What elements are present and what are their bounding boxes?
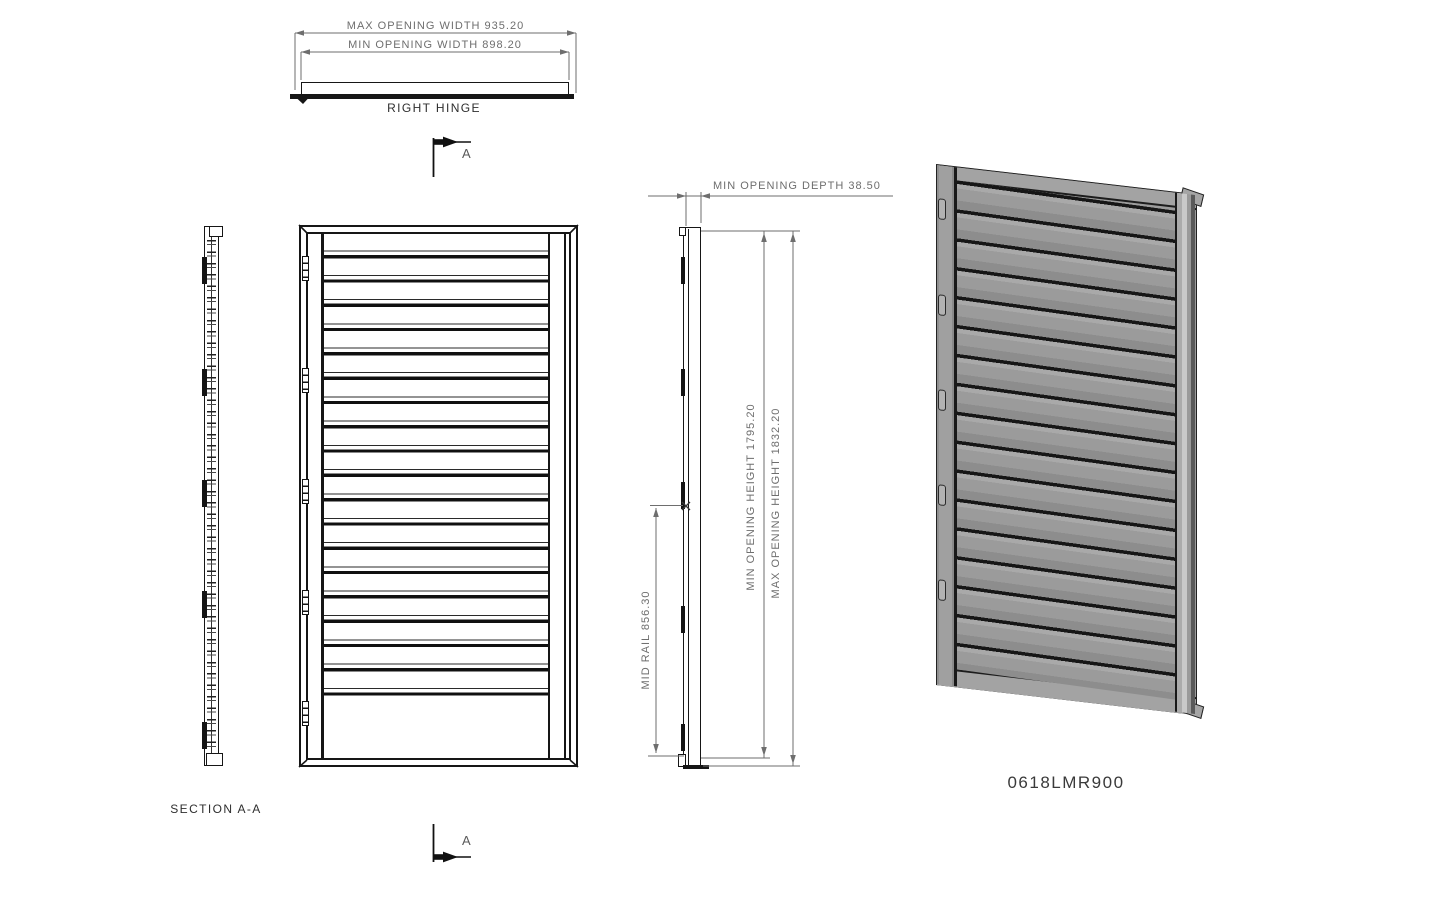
side-view-strip	[683, 227, 701, 768]
side-hinge-4	[681, 606, 686, 633]
side-hinge-3	[681, 482, 686, 509]
side-view-top-cap	[679, 227, 686, 236]
section-hinge-2	[202, 369, 207, 396]
section-view-label: SECTION A-A	[116, 802, 316, 816]
front-view-right-astragal-line	[564, 234, 567, 758]
side-hinge-5	[681, 724, 686, 751]
front-hinge-3	[302, 479, 309, 504]
top-view-label: RIGHT HINGE	[334, 101, 534, 115]
iso-view-shutter	[936, 164, 1197, 715]
section-view-bottom-foot	[206, 753, 223, 766]
section-hinge-5	[202, 722, 207, 749]
section-hinge-4	[202, 591, 207, 618]
dim-min-opening-width: MIN OPENING WIDTH 898.20	[301, 39, 569, 51]
section-view-louver-ends	[207, 240, 216, 752]
section-cut-marker-top: A	[462, 146, 472, 161]
front-hinge-1	[302, 256, 309, 281]
section-view-top-cap	[209, 226, 223, 237]
iso-louver-area	[957, 180, 1175, 699]
side-hinge-1	[681, 257, 686, 284]
section-cut-marker-bottom: A	[462, 833, 472, 848]
front-view-bottom-rail	[324, 697, 548, 757]
front-hinge-4	[302, 590, 309, 615]
side-hinge-2	[681, 369, 686, 396]
front-hinge-2	[302, 368, 309, 393]
top-view-track-bar	[290, 94, 574, 99]
iso-hinge-1	[938, 198, 946, 220]
part-number-label: 0618LMR900	[966, 773, 1166, 793]
dim-min-opening-depth: MIN OPENING DEPTH 38.50	[713, 180, 881, 192]
front-view-louver-area	[324, 234, 548, 758]
side-view-bottom-bar	[683, 765, 709, 769]
section-hinge-3	[202, 480, 207, 507]
iso-right-stile	[1175, 193, 1195, 714]
iso-hinge-3	[938, 389, 946, 411]
front-hinge-5	[302, 701, 309, 726]
iso-hinge-5	[938, 579, 946, 601]
iso-hinge-2	[938, 294, 946, 316]
dim-max-opening-width: MAX OPENING WIDTH 935.20	[295, 20, 576, 32]
section-hinge-1	[202, 257, 207, 284]
iso-hinge-4	[938, 484, 946, 506]
front-view-right-stile-line	[548, 234, 551, 758]
dim-max-opening-height: MAX OPENING HEIGHT 1832.20	[769, 398, 783, 608]
side-view-inner-line	[688, 229, 690, 766]
dim-min-opening-height: MIN OPENING HEIGHT 1795.20	[744, 392, 758, 602]
iso-left-stile	[937, 165, 957, 686]
dim-mid-rail: MID RAIL 856.30	[639, 570, 653, 710]
cad-drawing-sheet: MAX OPENING WIDTH 935.20 MIN OPENING WID…	[0, 0, 1445, 905]
